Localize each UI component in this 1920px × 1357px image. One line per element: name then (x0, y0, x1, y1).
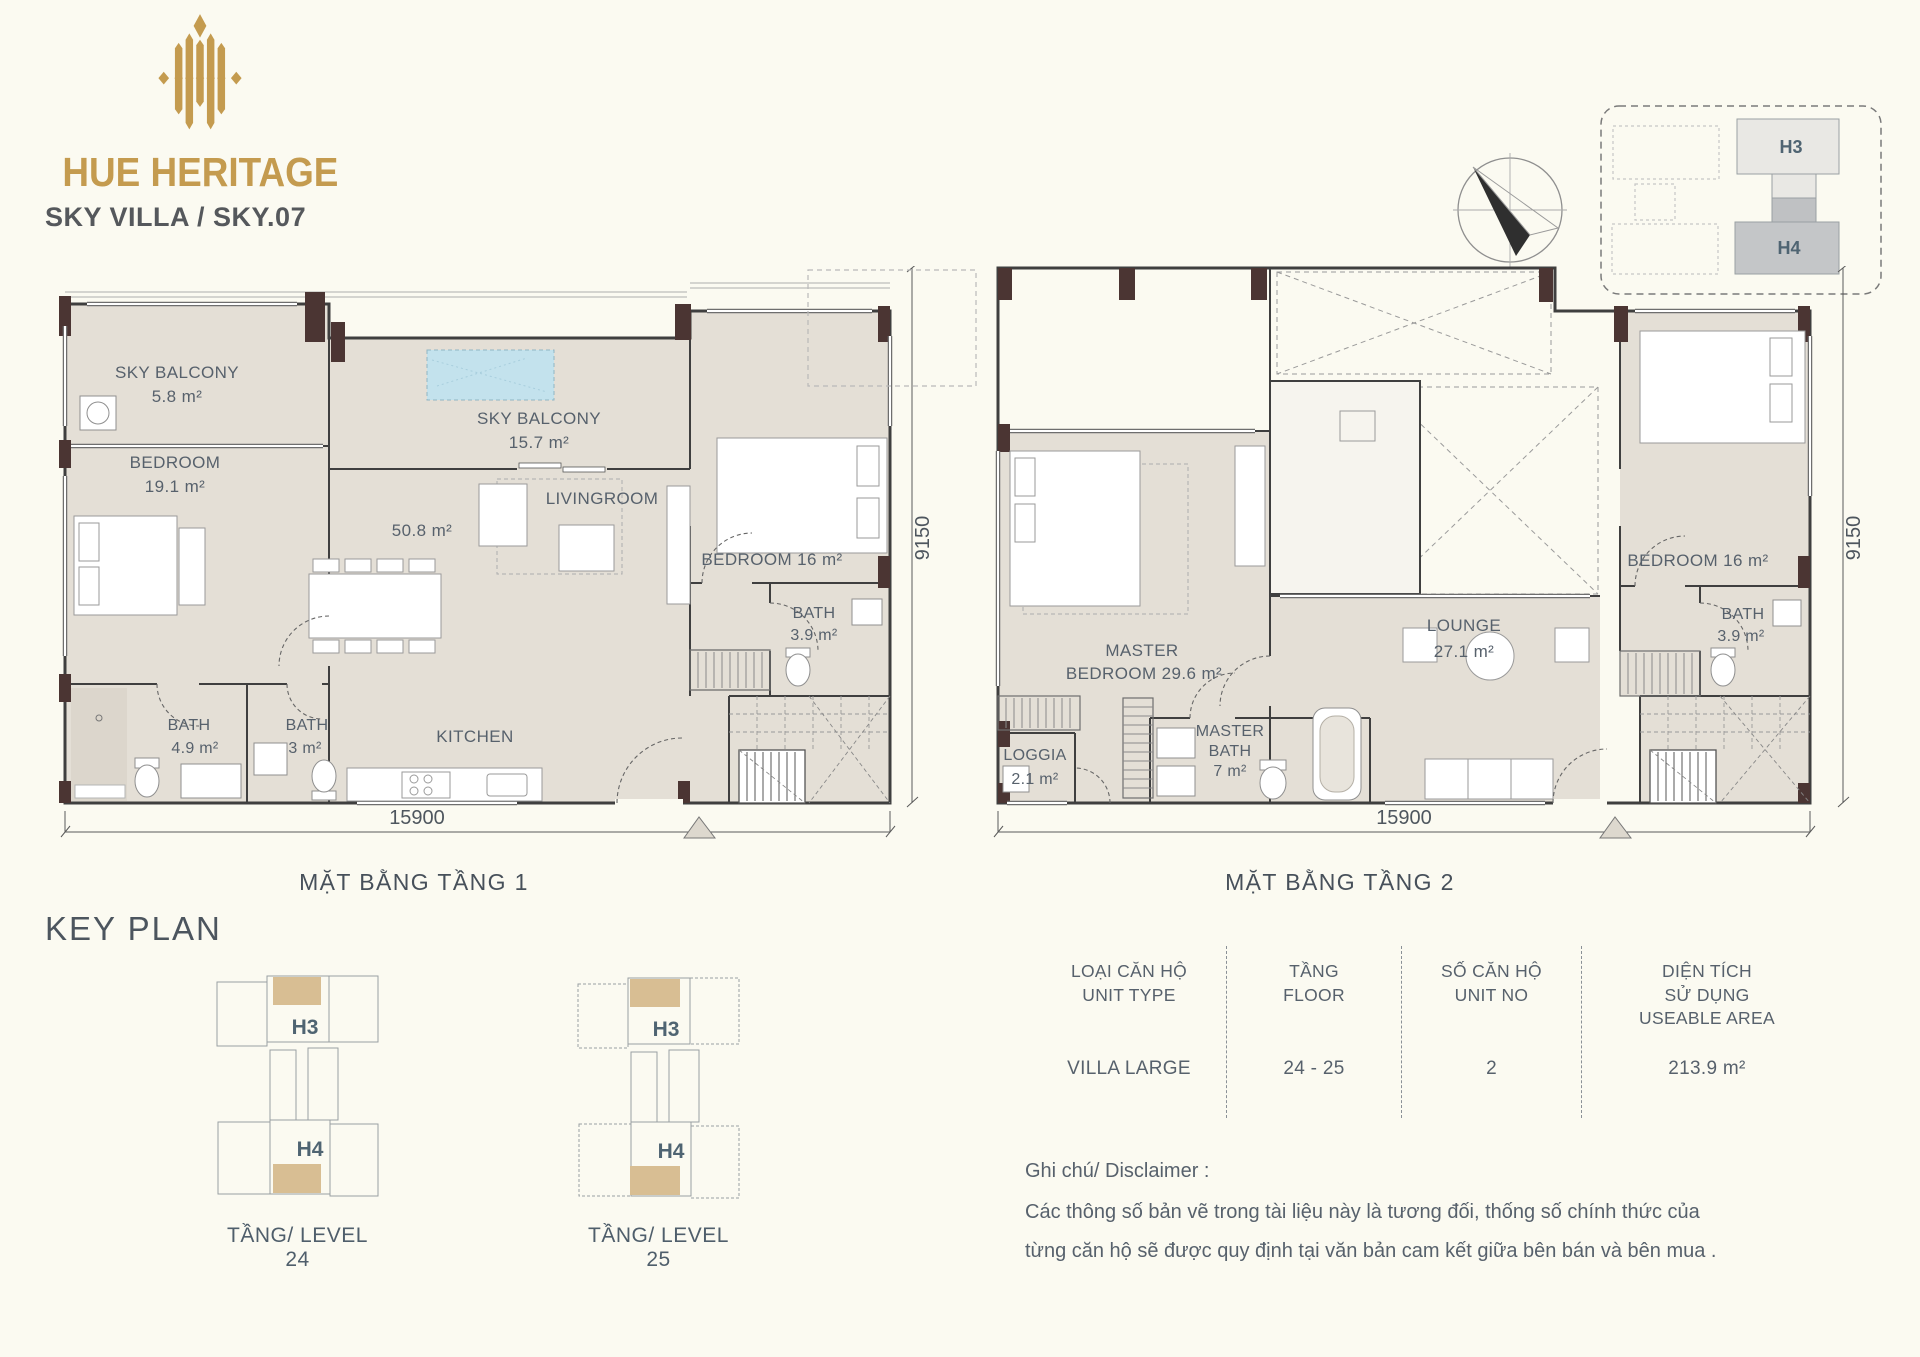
floor2-plan: MASTER BEDROOM 29.6 m² LOUNGE 27.1 m² BE… (795, 266, 1885, 916)
floor2-title: MẶT BẰNG TẦNG 2 (1225, 868, 1455, 895)
col-header-en: UNIT TYPE (1071, 984, 1187, 1008)
highlight-unit-h4 (273, 1164, 321, 1193)
floor1-label-bath-2: BATH (286, 717, 329, 734)
bed-icon (74, 516, 205, 615)
col-header-vi: DIỆN TÍCH (1639, 960, 1775, 984)
floor2-entry-arrow (1600, 817, 1631, 838)
col-header-en: UNIT NO (1441, 984, 1542, 1008)
floor1-area-livingroom: 50.8 m² (392, 521, 452, 540)
site-h4-label: H4 (1777, 238, 1800, 258)
col-header-vi: SỐ CĂN HỘ (1441, 960, 1542, 984)
floor2-label-master-bath-2: BATH (1209, 743, 1252, 760)
floor1-label-sky-balcony-2: SKY BALCONY (477, 409, 601, 428)
floor2-dim-height: 9150 (1843, 516, 1865, 561)
col-header-vi2: SỬ DỤNG (1639, 984, 1775, 1008)
floor-plan-sheet: HUE HERITAGE SKY VILLA / SKY.07 H3 H4 (0, 0, 1920, 1357)
floor1-area-sky-balcony-2: 15.7 m² (509, 433, 569, 452)
kitchen-counter-icon (347, 768, 542, 801)
level-24-caption: TẦNG/ LEVEL 24 (215, 1224, 380, 1272)
level25-h3-label: H3 (653, 1018, 680, 1041)
disclaimer-heading: Ghi chú/ Disclaimer : (1025, 1160, 1855, 1183)
key-plan-title: KEY PLAN (45, 910, 222, 948)
table-col-unit-no: SỐ CĂN HỘ UNIT NO 2 (1402, 946, 1582, 1118)
floor1-label-sky-balcony-1: SKY BALCONY (115, 363, 239, 382)
pool (427, 350, 554, 400)
col-header-en: USEABLE AREA (1639, 1007, 1775, 1031)
disclaimer-line-2: từng căn hộ sẽ được quy định tại văn bản… (1025, 1232, 1855, 1271)
floor2-label-bath-right: BATH (1722, 606, 1765, 623)
col-header-en: FLOOR (1283, 984, 1345, 1008)
table-col-floor: TẦNG FLOOR 24 - 25 (1227, 946, 1402, 1118)
floor2-area-bath-right: 3.9 m² (1717, 628, 1765, 645)
floor1-area-sky-balcony-1: 5.8 m² (152, 387, 203, 406)
floor1-label-livingroom: LIVINGROOM (546, 489, 659, 508)
floor1-area-bedroom-left: 19.1 m² (145, 477, 205, 496)
floor2-dim-width: 15900 (1376, 807, 1432, 829)
table-col-useable-area: DIỆN TÍCH SỬ DỤNG USEABLE AREA 213.9 m² (1582, 946, 1832, 1118)
level-24-diagram: H3 H4 (215, 970, 380, 1202)
useable-area-value: 213.9 m² (1668, 1058, 1745, 1080)
floor1-title: MẶT BẰNG TẦNG 1 (299, 868, 529, 895)
bed-icon (1640, 331, 1805, 443)
unit-table: LOẠI CĂN HỘ UNIT TYPE VILLA LARGE TẦNG F… (1032, 946, 1832, 1118)
level24-h4-label: H4 (297, 1138, 324, 1161)
level25-h4-label: H4 (658, 1140, 685, 1163)
highlight-unit-h3 (273, 977, 321, 1005)
floor1-area-bath-2: 3 m² (288, 740, 322, 757)
level-25-caption: TẦNG/ LEVEL 25 (576, 1224, 741, 1272)
brand-block: HUE HERITAGE SKY VILLA / SKY.07 (35, 12, 365, 233)
floor2-area-master-bath: 7 m² (1213, 763, 1247, 780)
floor1-label-kitchen: KITCHEN (436, 727, 513, 746)
walk-in-closet (1270, 381, 1420, 594)
floor2-label-master-2: BEDROOM 29.6 m² (1066, 664, 1222, 683)
floor-value: 24 - 25 (1283, 1058, 1344, 1080)
unit-subtitle: SKY VILLA / SKY.07 (35, 202, 365, 233)
level24-h3-label: H3 (292, 1016, 319, 1039)
highlight-unit-h3 (630, 979, 680, 1007)
floor2-area-lounge: 27.1 m² (1434, 642, 1494, 661)
compass-icon (1450, 150, 1570, 270)
roof-outline (808, 270, 976, 386)
floor1-entry-arrow (684, 817, 715, 838)
floor1-area-bath-1: 4.9 m² (171, 740, 219, 757)
site-faint-towers (1612, 126, 1719, 274)
floor1-dim-width: 15900 (389, 807, 445, 829)
floor2-label-master-1: MASTER (1105, 641, 1178, 660)
floor2-label-lounge: LOUNGE (1427, 616, 1501, 635)
disclaimer-line-1: Các thông số bản vẽ trong tài liệu này l… (1025, 1193, 1855, 1232)
col-header-vi: TẦNG (1283, 960, 1345, 984)
table-col-unit-type: LOẠI CĂN HỘ UNIT TYPE VILLA LARGE (1032, 946, 1227, 1118)
washing-machine-icon (80, 396, 116, 430)
col-header-vi: LOẠI CĂN HỘ (1071, 960, 1187, 984)
floor2-area-loggia: 2.1 m² (1011, 771, 1059, 788)
unit-no-value: 2 (1486, 1058, 1497, 1080)
site-h3-label: H3 (1779, 137, 1802, 157)
floor2-label-loggia: LOGGIA (1003, 747, 1066, 764)
unit-type-value: VILLA LARGE (1067, 1058, 1191, 1080)
hue-heritage-logo-icon (125, 12, 275, 140)
brand-title: HUE HERITAGE (62, 149, 338, 196)
floor2-label-master-bath-1: MASTER (1196, 723, 1264, 740)
disclaimer-block: Ghi chú/ Disclaimer : Các thông số bản v… (1025, 1160, 1855, 1271)
highlight-unit-h4 (630, 1166, 680, 1195)
floor1-label-bedroom-left: BEDROOM (130, 453, 221, 472)
floor1-label-bath-1: BATH (168, 717, 211, 734)
level-25-diagram: H3 H4 (576, 972, 741, 1204)
floor2-label-bedroom-right: BEDROOM 16 m² (1627, 551, 1768, 570)
